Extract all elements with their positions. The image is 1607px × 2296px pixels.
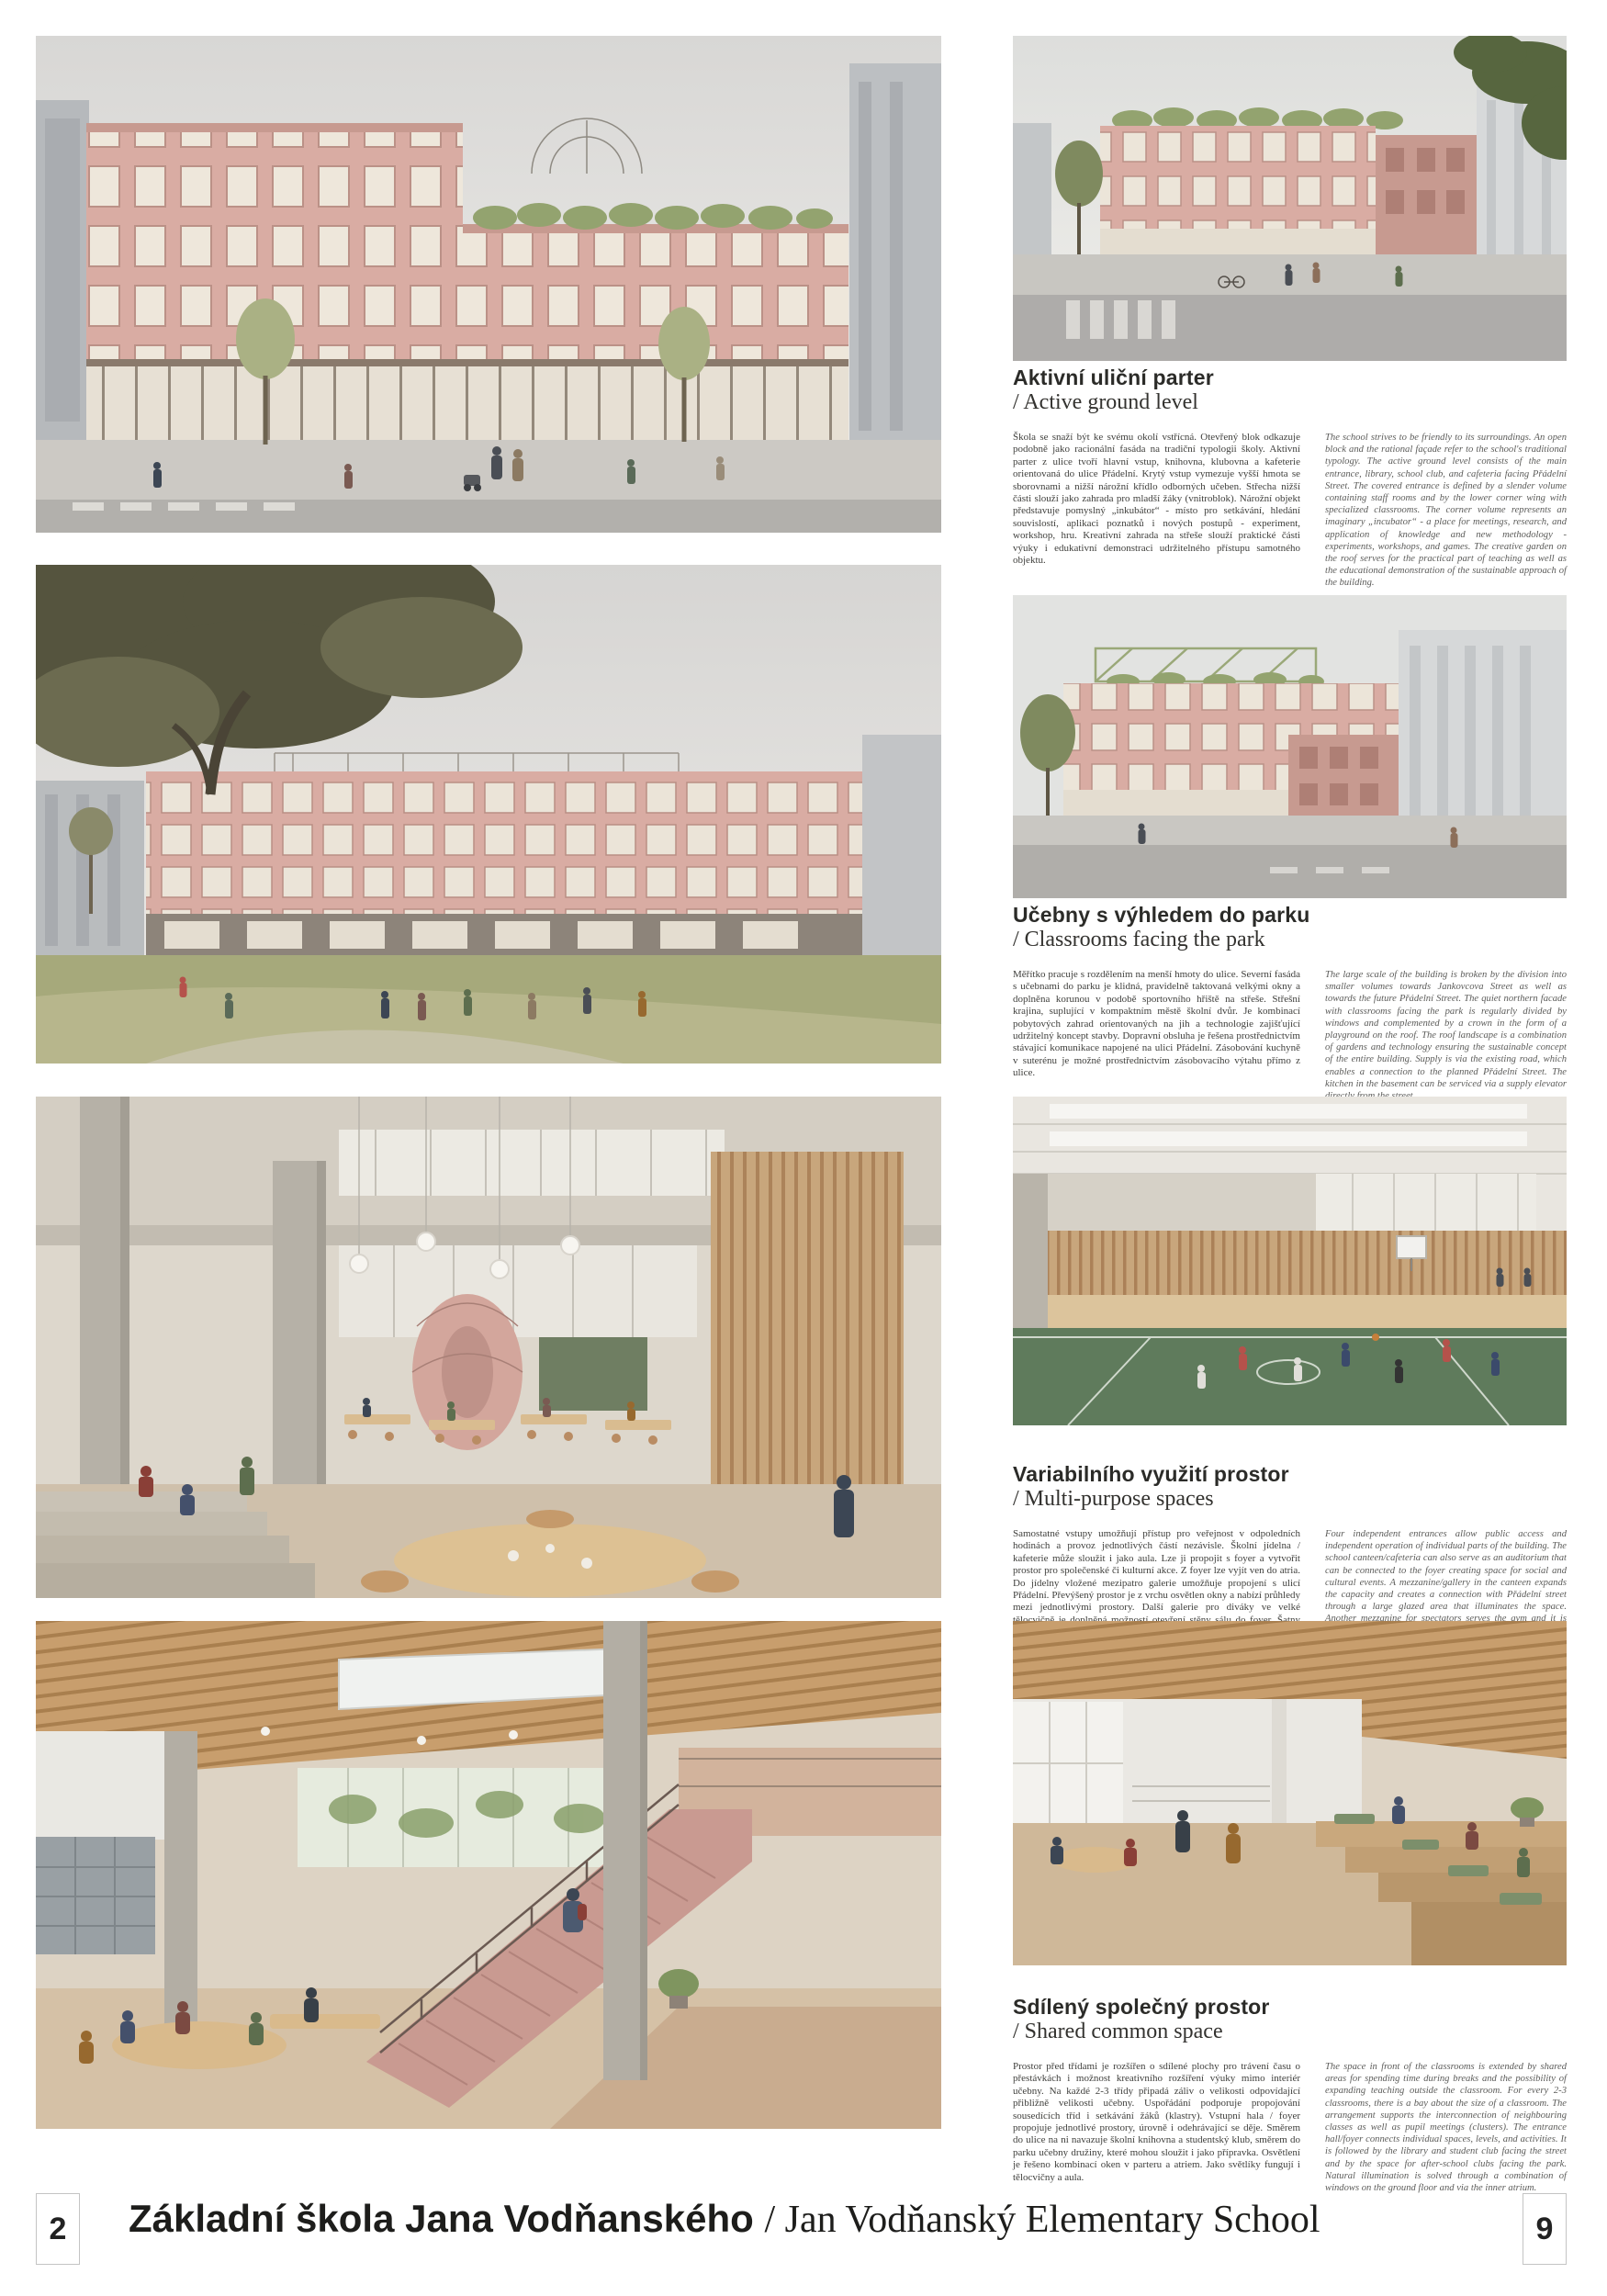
- section-body-czech: Škola se snaží být ke svému okolí vstříc…: [1013, 432, 1300, 590]
- section-heading-cs: Variabilního využití prostor: [1013, 1462, 1567, 1487]
- render-commons-interior-side: [1013, 1621, 1567, 1965]
- render-atrium-stair-main: [36, 1621, 941, 2129]
- canteen-interior-illustration: [36, 1097, 941, 1598]
- section-body-czech: Měřítko pracuje s rozdělením na menší hm…: [1013, 969, 1300, 1102]
- page-number-right: 9: [1523, 2193, 1567, 2265]
- board-title-czech: Základní škola Jana Vodňanského: [129, 2197, 764, 2240]
- section-active-ground-level: Aktivní uliční parter / Active ground le…: [1013, 366, 1567, 590]
- gym-interior-illustration: [1013, 1097, 1567, 1425]
- render-gym-interior-side: [1013, 1097, 1567, 1425]
- section-heading-en: / Shared common space: [1013, 2020, 1567, 2044]
- corner-roofframe-illustration: [1013, 595, 1567, 898]
- section-heading-cs: Učebny s výhledem do parku: [1013, 903, 1567, 928]
- section-body-english: The school strives to be friendly to its…: [1325, 432, 1567, 590]
- corner-view-illustration: [1013, 36, 1567, 361]
- render-park-view-main: [36, 565, 941, 1064]
- section-body-czech: Prostor před třídami je rozšířen o sdíle…: [1013, 2061, 1300, 2194]
- board-title: Základní škola Jana Vodňanského / Jan Vo…: [129, 2197, 1212, 2242]
- street-view-illustration: [36, 36, 941, 533]
- section-heading-en: / Active ground level: [1013, 390, 1567, 415]
- render-street-view-main: [36, 36, 941, 533]
- render-canteen-interior-main: [36, 1097, 941, 1598]
- render-corner-roofframe-side: [1013, 595, 1567, 898]
- section-classrooms-facing-park: Učebny s výhledem do parku / Classrooms …: [1013, 903, 1567, 1102]
- presentation-board: Aktivní uliční parter / Active ground le…: [0, 0, 1607, 2296]
- section-body-english: The large scale of the building is broke…: [1325, 969, 1567, 1102]
- page-number-left-value: 2: [50, 2212, 67, 2247]
- section-heading-cs: Sdílený společný prostor: [1013, 1995, 1567, 2020]
- render-street-corner-side: [1013, 36, 1567, 361]
- page-number-right-value: 9: [1536, 2212, 1554, 2247]
- page-number-left: 2: [36, 2193, 80, 2265]
- section-heading-en: / Classrooms facing the park: [1013, 928, 1567, 952]
- section-heading-cs: Aktivní uliční parter: [1013, 366, 1567, 390]
- section-shared-common-space: Sdílený společný prostor / Shared common…: [1013, 1995, 1567, 2194]
- atrium-stair-illustration: [36, 1621, 941, 2129]
- section-body-english: The space in front of the classrooms is …: [1325, 2061, 1567, 2194]
- board-title-english: / Jan Vodňanský Elementary School: [764, 2199, 1320, 2241]
- section-heading-en: / Multi-purpose spaces: [1013, 1487, 1567, 1512]
- park-view-illustration: [36, 565, 941, 1064]
- commons-interior-illustration: [1013, 1621, 1567, 1965]
